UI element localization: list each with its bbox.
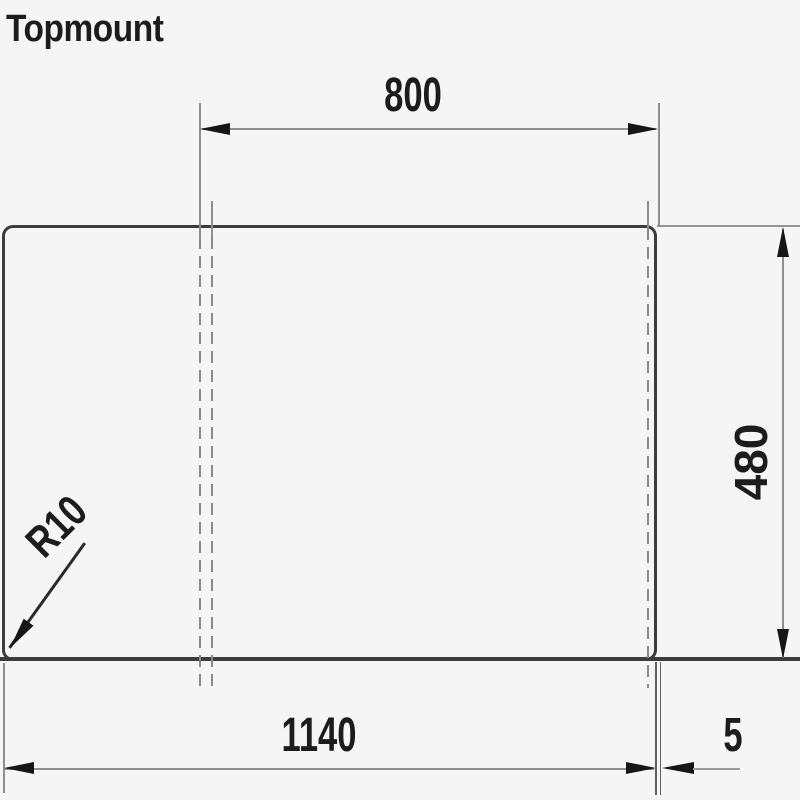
dim-480-line <box>782 229 784 658</box>
dim-5-extension-left <box>655 662 657 795</box>
cutout-dashed-line-right <box>647 228 649 688</box>
cutout-stub-left <box>211 201 213 237</box>
arrowhead-down-icon <box>777 629 789 659</box>
arrowhead-right-icon <box>626 762 656 774</box>
arrowhead-up-icon <box>777 227 789 257</box>
dim-800-line <box>202 128 656 131</box>
bottom-edge-extension-line <box>0 657 800 661</box>
sink-outline <box>2 225 657 661</box>
dim-800-label: 800 <box>384 72 442 120</box>
arrowhead-left-icon <box>662 762 694 774</box>
drawing-title: Topmount <box>6 8 163 51</box>
dim-480-label: 480 <box>728 424 774 501</box>
arrowhead-left-icon <box>200 123 230 135</box>
arrowhead-right-icon <box>628 123 658 135</box>
cutout-dashed-line-left-outer <box>199 237 201 690</box>
dim-5-tail-line <box>693 768 740 770</box>
dim-1140-label: 1140 <box>282 712 357 760</box>
cutout-dashed-line-left-inner <box>211 237 213 690</box>
dim-1140-line <box>5 768 654 771</box>
arrowhead-left-icon <box>4 762 34 774</box>
technical-drawing: Topmount 800 480 1140 5 R10 <box>0 0 800 800</box>
cutout-stub-right <box>647 201 649 228</box>
dim-5-label: 5 <box>723 712 742 760</box>
dim-5-extension-right <box>660 662 662 795</box>
